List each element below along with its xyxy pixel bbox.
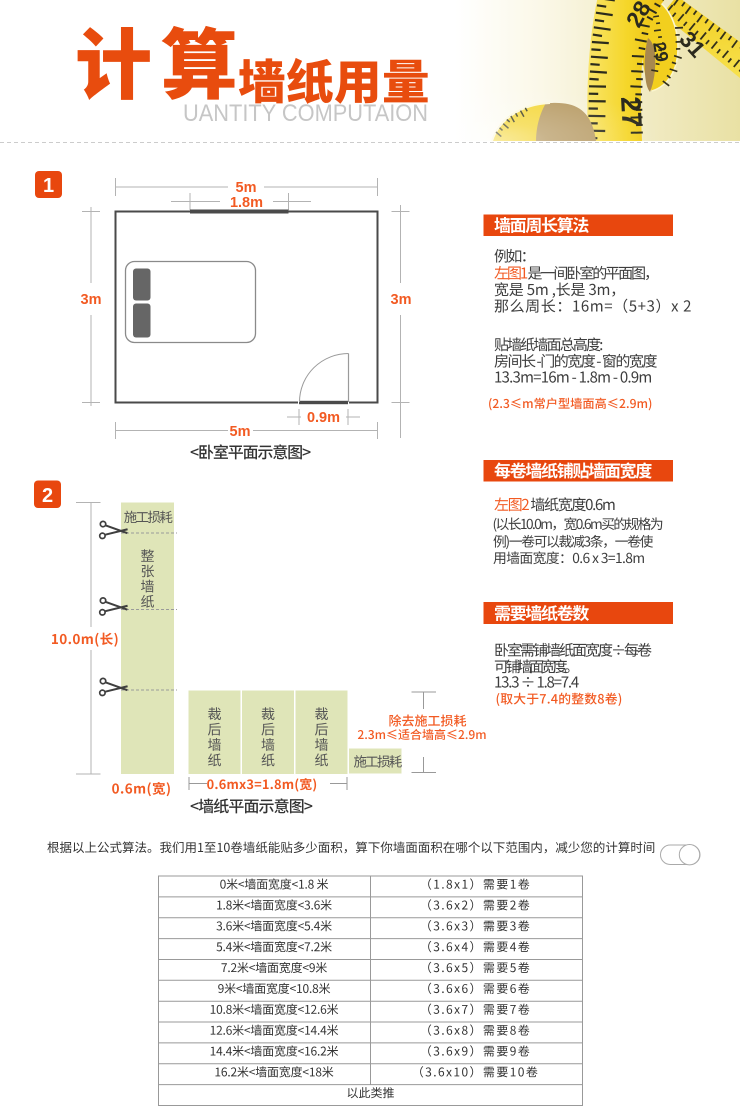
svg-text:5m: 5m [230,424,251,440]
svg-text:1.8m: 1.8m [230,195,263,211]
svg-text:29: 29 [649,40,672,63]
svg-text:UANTITY COMPUTAION: UANTITY COMPUTAION [183,100,428,127]
svg-text:3m: 3m [391,292,412,308]
svg-text:1: 1 [43,175,54,197]
svg-text:5m: 5m [236,180,257,196]
svg-text:3m: 3m [81,292,102,308]
svg-text:0.9m: 0.9m [307,410,340,426]
svg-text:2: 2 [42,485,53,507]
